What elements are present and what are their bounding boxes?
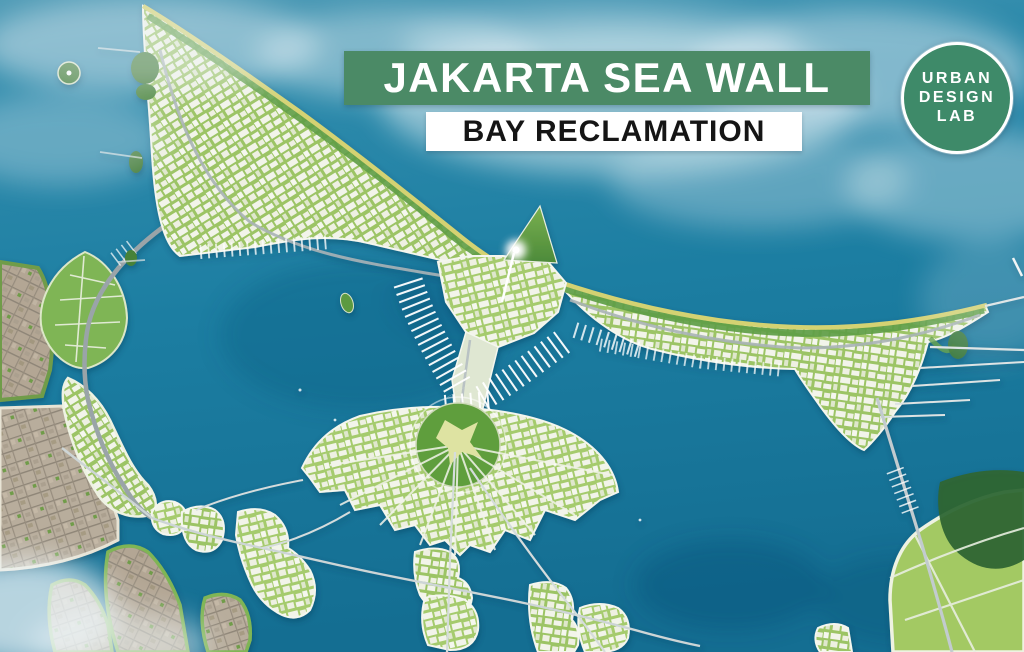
logo-line-2: DESIGN — [919, 90, 995, 106]
poster: JAKARTA SEA WALL BAY RECLAMATION URBAN D… — [0, 0, 1024, 652]
logo-line-1: URBAN — [922, 71, 992, 87]
title-banner: JAKARTA SEA WALL — [344, 51, 870, 105]
subtitle-banner: BAY RECLAMATION — [426, 112, 802, 151]
urban-design-lab-logo: URBAN DESIGN LAB — [901, 42, 1013, 154]
logo-line-3: LAB — [937, 109, 977, 125]
